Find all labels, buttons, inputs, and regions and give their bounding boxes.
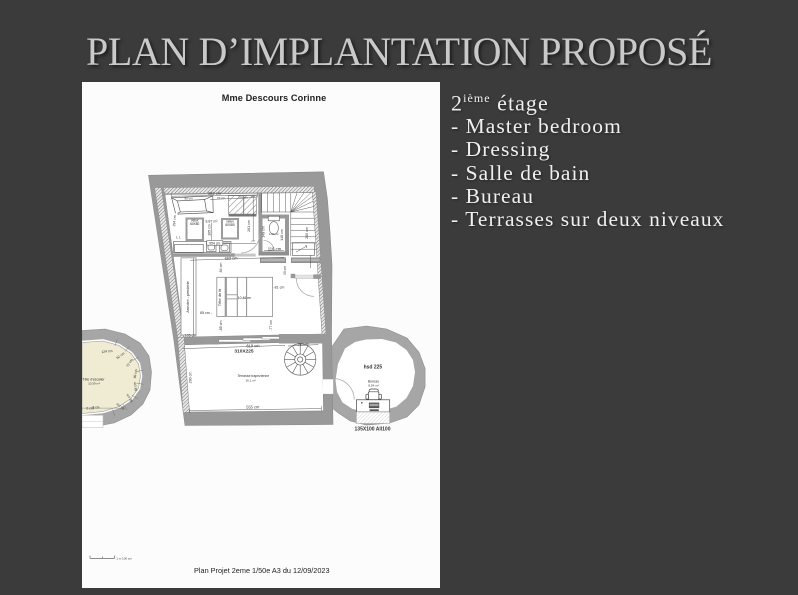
svg-text:1,03 m²: 1,03 m² (269, 232, 279, 236)
svg-text:1 m 100 cm: 1 m 100 cm (116, 556, 132, 560)
svg-text:120 cm: 120 cm (238, 195, 248, 199)
svg-text:382 cm: 382 cm (208, 191, 222, 196)
svg-text:8,54 m²: 8,54 m² (368, 384, 378, 388)
svg-text:Tête de lit: Tête de lit (217, 288, 222, 306)
svg-text:hsd 225: hsd 225 (364, 365, 383, 371)
svg-text:-85 cm: -85 cm (219, 321, 223, 332)
svg-text:60X80: 60X80 (190, 222, 199, 226)
svg-text:30 cm: 30 cm (283, 266, 287, 275)
svg-text:10,39 m²: 10,39 m² (88, 382, 100, 386)
svg-text:85 cm -: 85 cm - (200, 311, 213, 315)
svg-text:L L: L L (176, 236, 181, 240)
svg-text:9,87 m²: 9,87 m² (205, 220, 218, 224)
svg-text:954 cm: 954 cm (209, 242, 220, 246)
svg-text:261 cm: 261 cm (247, 220, 251, 232)
svg-text:70 cm: 70 cm (217, 196, 226, 200)
svg-text:483 cm: 483 cm (224, 255, 238, 261)
svg-text:105 cm: 105 cm (185, 334, 197, 338)
svg-text:0 cm: 0 cm (86, 407, 94, 411)
svg-text:Armoire - penderie: Armoire - penderie (186, 281, 190, 312)
svg-text:10,46 m²: 10,46 m² (238, 296, 252, 300)
svg-text:555 cm: 555 cm (246, 404, 260, 409)
svg-text:84 cm: 84 cm (219, 263, 223, 273)
svg-text:148 cm: 148 cm (280, 229, 284, 241)
svg-text:-81 cm: -81 cm (273, 285, 284, 289)
svg-text:135X100 All100: 135X100 All100 (355, 426, 391, 432)
svg-text:260 cm: 260 cm (305, 227, 309, 239)
svg-text:310X225: 310X225 (234, 349, 254, 355)
svg-text:Plan Projet 2eme 1/50e A3 du 1: Plan Projet 2eme 1/50e A3 du 12/09/2023 (194, 566, 330, 575)
svg-text:105 cm: 105 cm (208, 224, 212, 236)
svg-text:16,1 m²: 16,1 m² (246, 378, 256, 382)
svg-text:310 cm: 310 cm (297, 342, 309, 347)
svg-text:619 cm: 619 cm (246, 343, 260, 348)
svg-text:290 cm: 290 cm (189, 372, 193, 384)
svg-text:116 cm: 116 cm (268, 246, 282, 251)
svg-text:149 cm: 149 cm (262, 226, 266, 238)
svg-text:90 cm: 90 cm (184, 197, 193, 201)
svg-text:-77 cm: -77 cm (269, 320, 273, 331)
svg-text:60X80: 60X80 (225, 223, 234, 227)
svg-text:294 cm: 294 cm (172, 215, 177, 227)
